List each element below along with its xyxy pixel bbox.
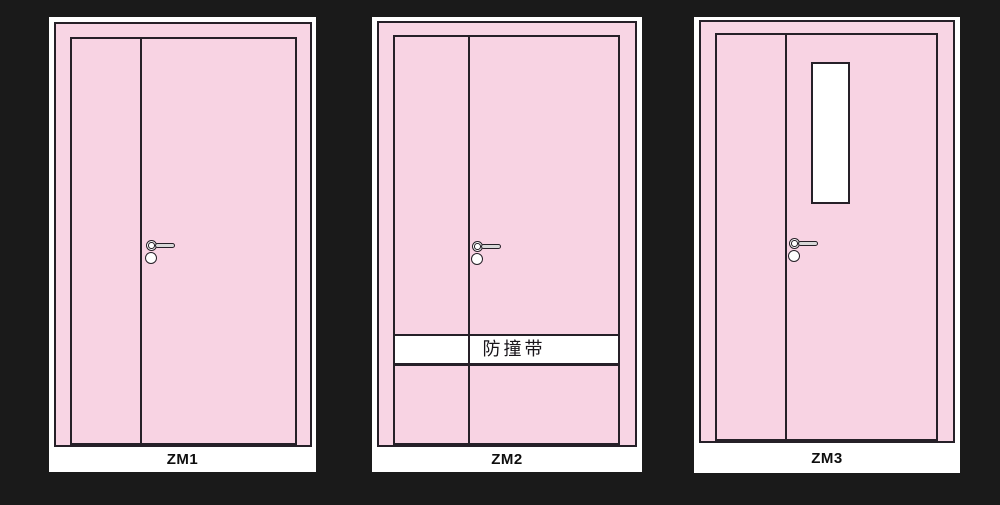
lock-cylinder-icon [471,253,483,265]
door-panel-zm2: 防撞带 ZM2 [372,17,642,472]
door-elevation-drawing-canvas: ZM1 防撞带 ZM2 ZM3 [0,0,1000,505]
crash-rail-band: 防撞带 [393,334,620,366]
vision-panel-window [811,62,850,204]
lock-cylinder-icon [145,252,157,264]
leaf-seam-line [785,35,787,439]
door-leaves: 防撞带 [393,35,620,447]
lock-cylinder-icon [788,250,800,262]
panel-label-zm1: ZM1 [49,447,316,472]
handle-lever-icon [798,241,818,246]
leaf-seam-line [140,39,142,443]
door-panel-zm3: ZM3 [694,17,960,473]
door-leaves [715,33,938,443]
handle-lever-icon [155,243,175,248]
handle-lever-icon [481,244,501,249]
panel-label-zm2: ZM2 [372,447,642,472]
leaf-seam-line [468,37,470,443]
door-panel-zm1: ZM1 [49,17,316,472]
panel-label-zm3: ZM3 [694,443,960,473]
door-leaves [70,37,297,447]
